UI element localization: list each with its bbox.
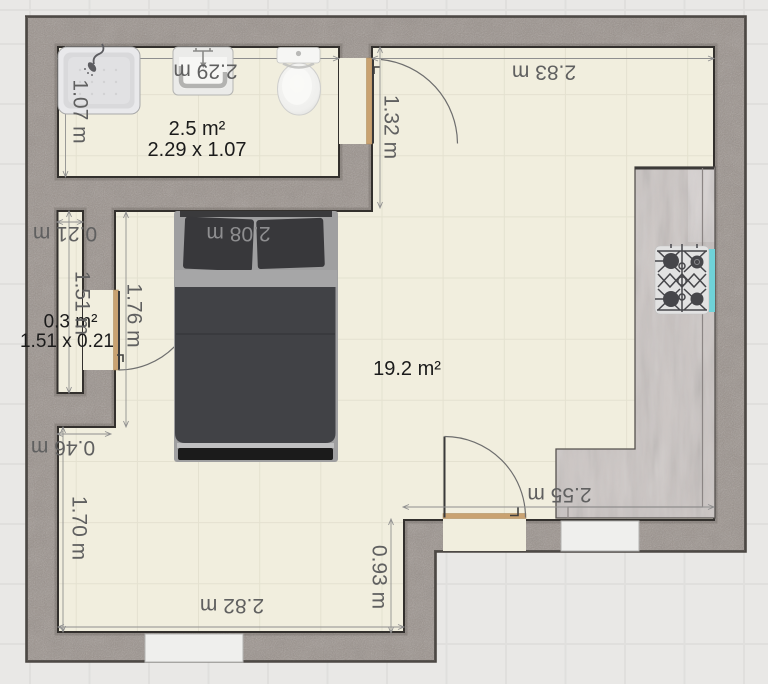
svg-text:2.55 m: 2.55 m [527, 483, 591, 506]
svg-text:1.51 m: 1.51 m [71, 271, 94, 335]
svg-text:0.93 m: 0.93 m [368, 545, 391, 609]
svg-text:2.29 x 1.07: 2.29 x 1.07 [148, 139, 247, 161]
svg-text:0.46 m: 0.46 m [31, 436, 95, 459]
svg-text:2.82 m: 2.82 m [200, 594, 264, 617]
svg-text:2.5 m²: 2.5 m² [169, 118, 226, 140]
svg-text:2.08 m: 2.08 m [206, 222, 270, 245]
svg-text:0.21 m: 0.21 m [33, 222, 97, 245]
svg-text:2.29 m: 2.29 m [173, 60, 237, 83]
svg-text:1.70 m: 1.70 m [68, 496, 91, 560]
svg-text:1.07 m: 1.07 m [69, 79, 92, 143]
svg-text:19.2 m²: 19.2 m² [373, 358, 441, 380]
svg-text:1.76 m: 1.76 m [123, 283, 146, 347]
svg-text:2.83 m: 2.83 m [512, 61, 576, 84]
svg-text:1.51 x 0.21: 1.51 x 0.21 [20, 331, 114, 352]
svg-text:1.32 m: 1.32 m [380, 95, 403, 159]
